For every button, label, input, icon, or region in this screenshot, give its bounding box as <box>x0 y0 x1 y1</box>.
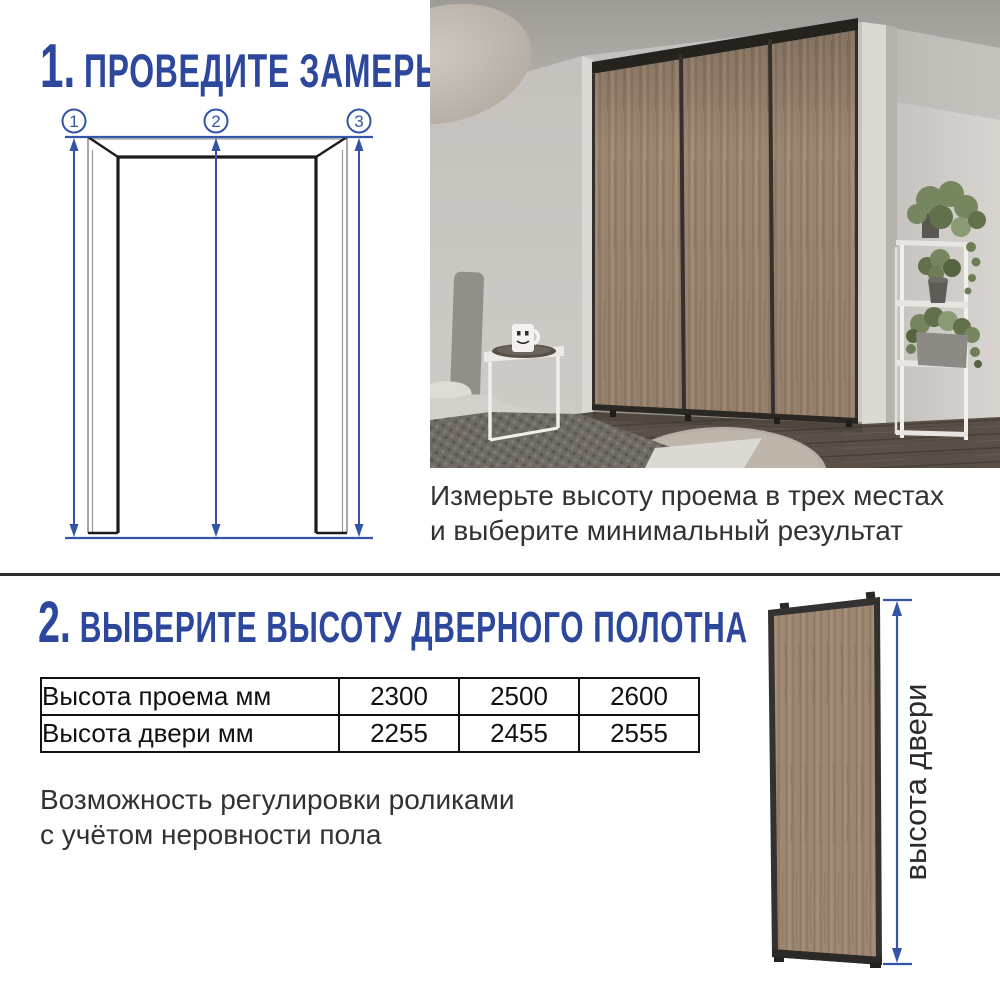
section-divider <box>0 573 1000 576</box>
opening-height-label: Высота проема мм <box>41 678 339 715</box>
adjustment-note: Возможность регулировки роликами с учёто… <box>40 782 514 852</box>
table-row-opening: Высота проема мм 2300 2500 2600 <box>41 678 699 715</box>
door-height-value-2: 2455 <box>459 715 579 752</box>
caption-line1: Измерьте высоту проема в трех местах <box>430 480 944 511</box>
opening-frame <box>88 137 347 533</box>
opening-height-value-3: 2600 <box>579 678 699 715</box>
bedroom-photo <box>430 0 1000 468</box>
headboard <box>450 272 484 401</box>
opening-height-value-2: 2500 <box>459 678 579 715</box>
door-height-value-3: 2555 <box>579 715 699 752</box>
note-line2: с учётом неровности пола <box>40 819 381 850</box>
door-panel-figure: высота двери <box>742 583 952 983</box>
opening-height-value-1: 2300 <box>339 678 459 715</box>
caption-line2: и выберите минимальный результат <box>430 515 903 546</box>
photo-caption: Измерьте высоту проема в трех местах и в… <box>430 478 944 548</box>
wardrobe <box>592 18 858 427</box>
niche-left-edge <box>582 56 593 414</box>
measure-arrows <box>70 138 364 537</box>
door-height-value-1: 2255 <box>339 715 459 752</box>
white-column <box>862 22 886 427</box>
door-height-label: высота двери <box>898 684 933 881</box>
marker-circles: 1 2 3 <box>63 110 371 133</box>
step2-title-text: ВЫБЕРИТЕ ВЫСОТУ ДВЕРНОГО ПОЛОТНА <box>80 606 748 650</box>
bottom-roller-left <box>774 957 784 962</box>
note-line1: Возможность регулировки роликами <box>40 784 514 815</box>
marker-3-label: 3 <box>354 112 363 131</box>
measurement-diagram: 1 2 3 <box>40 100 390 552</box>
marker-2-label: 2 <box>211 112 220 131</box>
step1-title-text: ПРОВЕДИТЕ ЗАМЕРЫ <box>84 47 447 94</box>
measuring-guide-infographic: 1. ПРОВЕДИТЕ ЗАМЕРЫ <box>0 0 1000 1000</box>
step2-number: 2. <box>38 594 71 652</box>
size-table: Высота проема мм 2300 2500 2600 Высота д… <box>40 677 700 753</box>
door-height-label-cell: Высота двери мм <box>41 715 339 752</box>
step2-title: 2. ВЫБЕРИТЕ ВЫСОТУ ДВЕРНОГО ПОЛОТНА <box>38 594 748 652</box>
door-wood-face <box>774 605 876 957</box>
step1-title: 1. ПРОВЕДИТЕ ЗАМЕРЫ <box>40 36 447 98</box>
marker-1-label: 1 <box>69 112 78 131</box>
bottom-roller-right <box>870 963 881 968</box>
door-panel <box>768 591 882 968</box>
step1-number: 1. <box>40 36 75 98</box>
table-row-door: Высота двери мм 2255 2455 2555 <box>41 715 699 752</box>
